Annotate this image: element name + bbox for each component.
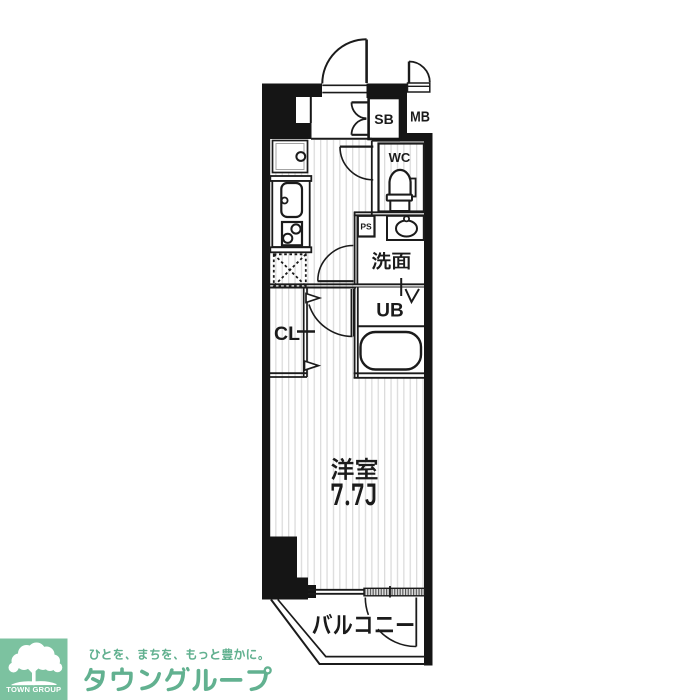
svg-text:UB: UB [376, 301, 403, 322]
svg-text:SB: SB [374, 111, 393, 127]
svg-text:CL: CL [274, 323, 300, 345]
svg-text:PS: PS [360, 222, 372, 232]
svg-text:WC: WC [389, 150, 411, 165]
svg-text:MB: MB [410, 107, 430, 124]
svg-text:TOWN GROUP: TOWN GROUP [6, 685, 61, 694]
